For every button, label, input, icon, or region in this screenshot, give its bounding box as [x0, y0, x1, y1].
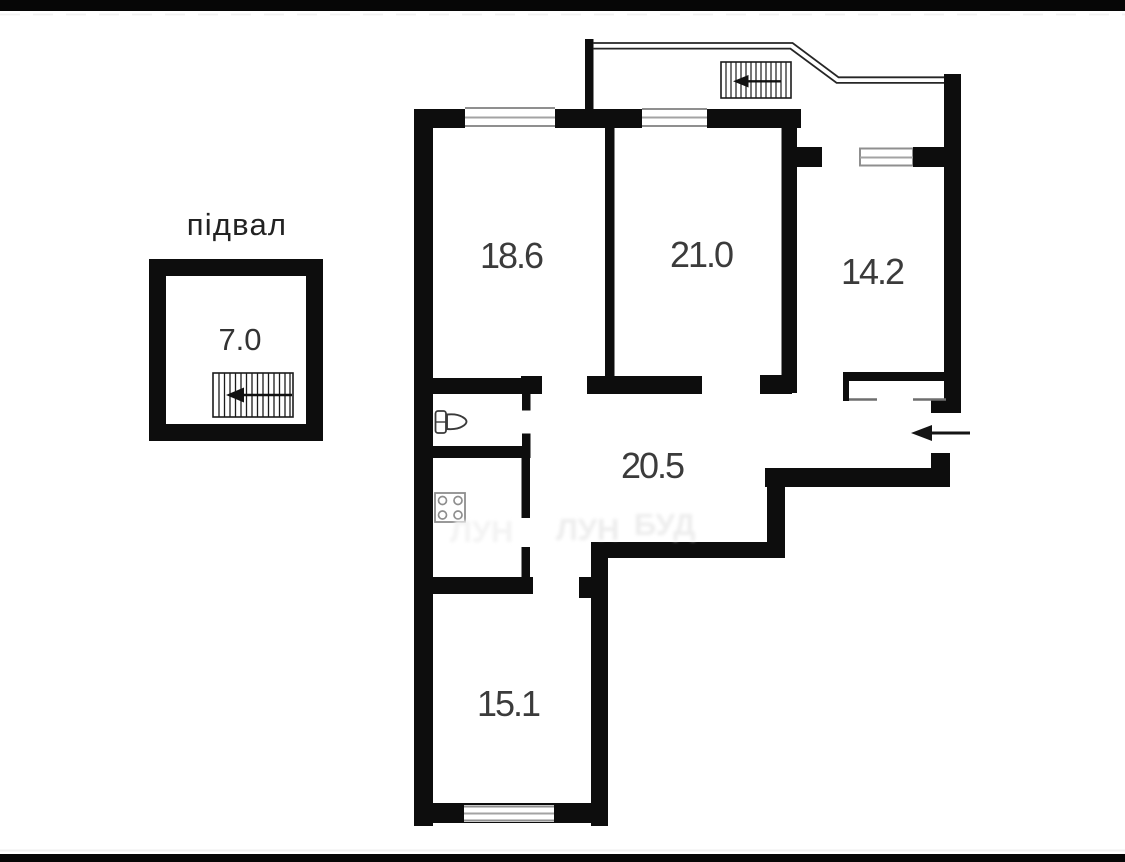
svg-text:ЛУН: ЛУН — [450, 514, 513, 549]
svg-text:БУД: БУД — [634, 507, 695, 542]
svg-text:14.2: 14.2 — [841, 251, 904, 292]
svg-text:21.0: 21.0 — [670, 234, 733, 275]
svg-text:7.0: 7.0 — [218, 322, 261, 357]
svg-text:ЛУН: ЛУН — [556, 512, 619, 547]
svg-text:18.6: 18.6 — [480, 235, 543, 276]
svg-text:20.5: 20.5 — [621, 445, 684, 486]
svg-text:15.1: 15.1 — [477, 683, 540, 724]
svg-text:підвал: підвал — [187, 207, 287, 242]
